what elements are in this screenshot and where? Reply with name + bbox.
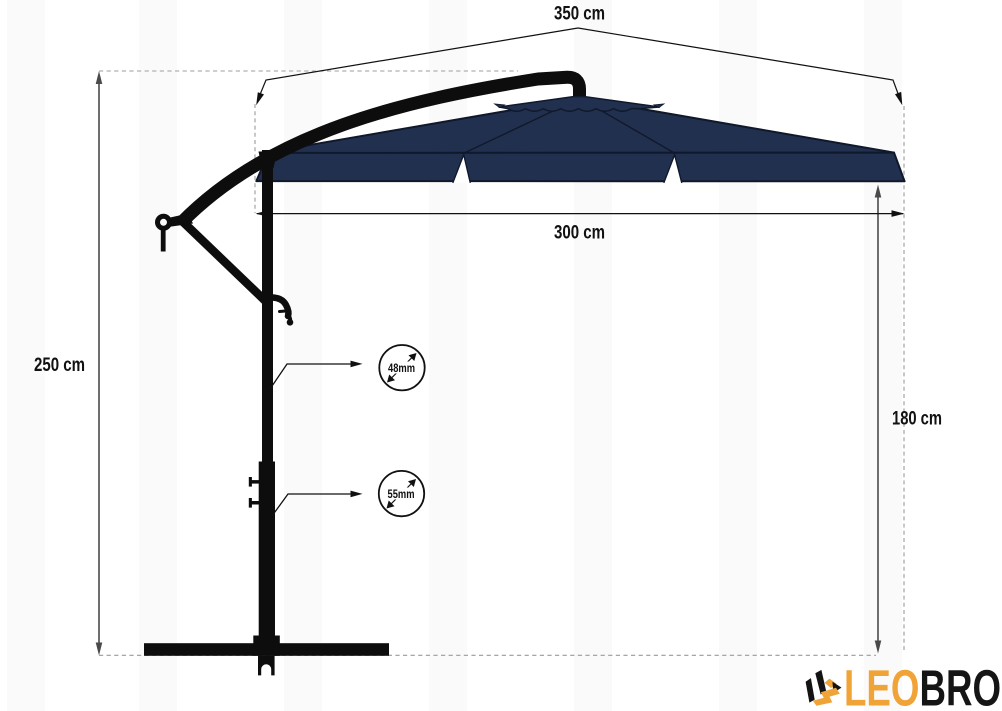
svg-text:300 cm: 300 cm xyxy=(554,223,605,244)
svg-text:LEOBRO: LEOBRO xyxy=(844,660,1001,711)
svg-text:55mm: 55mm xyxy=(388,487,415,501)
svg-text:180 cm: 180 cm xyxy=(892,409,942,430)
svg-text:250 cm: 250 cm xyxy=(34,355,85,376)
svg-text:48mm: 48mm xyxy=(388,361,415,375)
svg-text:350 cm: 350 cm xyxy=(554,4,605,25)
